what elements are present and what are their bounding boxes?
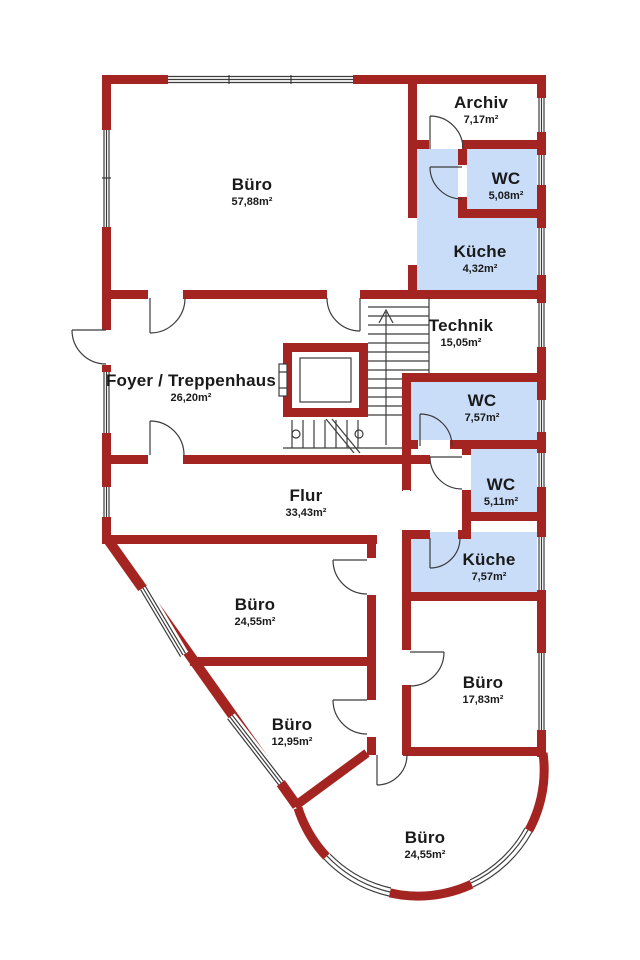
- window-background: [327, 856, 390, 892]
- room-area-wc-511: 5,11m²: [484, 496, 519, 508]
- wall-segment: [190, 657, 376, 666]
- door-opening: [367, 700, 376, 737]
- door-opening: [429, 140, 462, 149]
- room-label-flur: Flur: [290, 486, 323, 505]
- room-label-buero-mitte: Büro: [235, 595, 275, 614]
- room-area-archiv: 7,17m²: [464, 114, 499, 126]
- room-label-technik: Technik: [429, 316, 494, 335]
- door-opening: [367, 558, 376, 595]
- room-label-foyer: Foyer / Treppenhaus: [106, 371, 276, 390]
- room-label-buero-gross: Büro: [232, 175, 272, 194]
- wall-segment: [458, 530, 470, 539]
- room-area-buero-mitte: 24,55m²: [235, 616, 276, 628]
- elevator-door: [279, 364, 287, 396]
- room-label-wc-508: WC: [492, 169, 521, 188]
- door-opening: [462, 455, 471, 490]
- room-area-buero-gross: 57,88m²: [232, 196, 273, 208]
- wall-segment: [458, 209, 538, 218]
- wall-segment: [402, 373, 411, 491]
- room-area-buero-unten: 24,55m²: [405, 849, 446, 861]
- room-area-buero-1295: 12,95m²: [272, 736, 313, 748]
- room-area-flur: 33,43m²: [286, 507, 327, 519]
- door-opening: [102, 330, 111, 365]
- door-swing: [333, 560, 367, 594]
- window: [168, 75, 353, 84]
- room-area-technik: 15,05m²: [441, 337, 482, 349]
- diagonal-interior-wall: [295, 753, 367, 806]
- door-opening: [148, 455, 183, 464]
- elevator-shaft-wall: [283, 343, 368, 352]
- elevator-shaft-wall: [283, 408, 368, 417]
- wall-segment: [402, 592, 546, 601]
- door-opening: [402, 650, 411, 685]
- floorplan-page: Büro 57,88m² Archiv 7,17m² WC 5,08m² Küc…: [0, 0, 640, 960]
- door-swing: [333, 700, 367, 734]
- room-label-archiv: Archiv: [454, 93, 508, 112]
- room-area-kueche-432: 4,32m²: [463, 263, 498, 275]
- door-swing: [150, 298, 185, 333]
- room-label-kueche-432: Küche: [454, 242, 507, 261]
- wall-segment: [408, 140, 538, 149]
- wall-segment: [403, 747, 546, 756]
- room-label-buero-1783: Büro: [463, 673, 503, 692]
- room-label-kueche-757: Küche: [463, 550, 516, 569]
- room-area-wc-757: 7,57m²: [465, 412, 500, 424]
- elevator-cab-area: [292, 352, 359, 408]
- wall-segment: [402, 530, 430, 539]
- door-opening: [148, 290, 183, 299]
- passage-opening: [408, 218, 417, 265]
- room-area-kueche-757: 7,57m²: [472, 571, 507, 583]
- angled-window-backgrounds: [143, 588, 528, 892]
- room-label-wc-757: WC: [468, 391, 497, 410]
- door-swing: [72, 330, 106, 364]
- door-swing: [430, 457, 462, 489]
- floorplan-drawing: Büro 57,88m² Archiv 7,17m² WC 5,08m² Küc…: [0, 0, 640, 960]
- elevator-shaft-wall: [359, 343, 368, 417]
- passage-opening: [403, 490, 410, 530]
- door-opening: [327, 290, 360, 299]
- wall-segment: [102, 535, 377, 544]
- door-swing: [150, 421, 184, 455]
- door-swing: [410, 652, 444, 686]
- room-label-buero-1295: Büro: [272, 715, 312, 734]
- wall-segment: [402, 373, 546, 382]
- door-opening: [418, 440, 450, 449]
- room-label-wc-511: WC: [487, 475, 516, 494]
- door-opening: [458, 165, 467, 197]
- door-swing: [327, 298, 360, 331]
- room-fill-wc-757: [410, 380, 537, 440]
- door-swing: [377, 755, 407, 785]
- room-area-buero-1783: 17,83m²: [463, 694, 504, 706]
- wall-segment: [462, 512, 546, 521]
- wall-segment: [402, 530, 411, 755]
- room-label-buero-unten: Büro: [405, 828, 445, 847]
- room-area-foyer: 26,20m²: [171, 392, 212, 404]
- room-area-wc-508: 5,08m²: [489, 190, 524, 202]
